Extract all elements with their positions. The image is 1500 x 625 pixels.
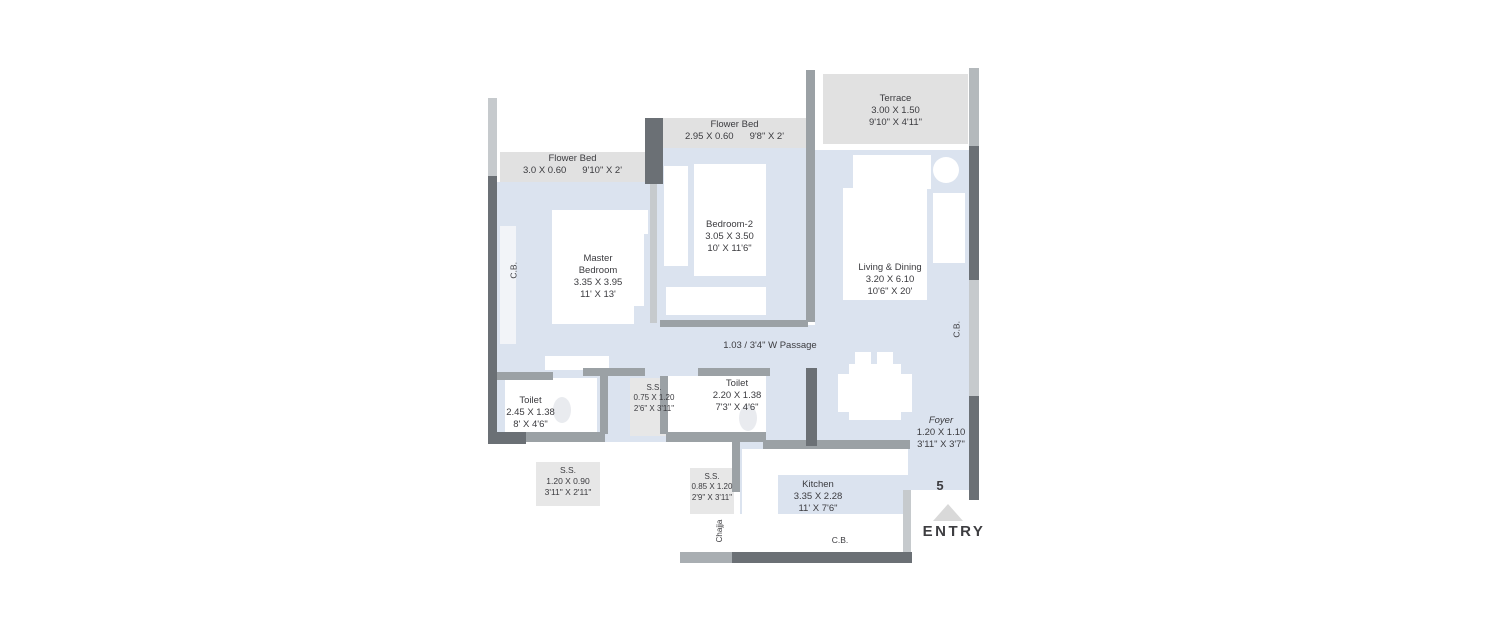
imperial-dims: 3'11" X 3'7" bbox=[908, 439, 974, 451]
imperial-dims: 2'6" X 3'11" bbox=[633, 404, 675, 414]
label-living-dining: Living & Dining 3.20 X 6.10 10'6" X 20' bbox=[840, 262, 940, 298]
imperial-dims: 10'6" X 20' bbox=[840, 286, 940, 298]
master-dresser bbox=[545, 356, 609, 370]
label-toilet-left: Toilet 2.45 X 1.38 8' X 4'6" bbox=[493, 395, 568, 431]
living-tv-unit bbox=[933, 193, 965, 263]
dining-chair-top-right bbox=[877, 352, 893, 364]
wall-kitchen-top bbox=[763, 440, 910, 449]
metric-dims: 0.75 X 1.20 bbox=[633, 393, 675, 403]
wall-toilet-mid-bottom bbox=[666, 432, 766, 442]
room-name: Terrace bbox=[823, 93, 968, 105]
label-passage: 1.03 / 3'4" W Passage bbox=[695, 340, 845, 352]
label-toilet-mid: Toilet 2.20 X 1.38 7'3" X 4'6" bbox=[698, 378, 776, 414]
label-ss-mid: S.S. 0.75 X 1.20 2'6" X 3'11" bbox=[633, 383, 675, 414]
imperial-dims: 8' X 4'6" bbox=[493, 419, 568, 431]
room-name: S.S. bbox=[691, 472, 733, 482]
imperial-dims: 2'9" X 3'11" bbox=[691, 493, 733, 503]
kitchen-counter bbox=[742, 449, 908, 475]
imperial-dims: 11' X 13' bbox=[566, 289, 630, 301]
wall-left-top-light bbox=[488, 98, 497, 176]
floor-plan: Flower Bed 3.0 X 0.60 9'10" X 2' Flower … bbox=[0, 0, 1500, 625]
wall-right-top-light bbox=[969, 68, 979, 146]
imperial-dims: 9'10" X 4'11" bbox=[823, 117, 968, 129]
label-flower-bed-left: Flower Bed 3.0 X 0.60 9'10" X 2' bbox=[500, 153, 645, 177]
metric-dims: 3.35 X 2.28 bbox=[773, 491, 863, 503]
room-name: Toilet bbox=[493, 395, 568, 407]
room-name: S.S. bbox=[536, 465, 600, 476]
metric-dims: 2.95 X 0.60 bbox=[685, 131, 734, 143]
wall-toilet-mid-top bbox=[698, 368, 770, 376]
wall-toilet-mid-right bbox=[806, 368, 817, 446]
label-ss-kitchen: S.S. 0.85 X 1.20 2'9" X 3'11" bbox=[691, 472, 733, 503]
label-foyer: Foyer 1.20 X 1.10 3'11" X 3'7" bbox=[908, 415, 974, 451]
label-cb-left: C.B. bbox=[509, 250, 520, 290]
imperial-dims: 3'11" X 2'11" bbox=[536, 487, 600, 498]
label-chajja: Chajja bbox=[715, 506, 725, 556]
wall-bedroom2-bottom bbox=[660, 320, 808, 327]
imperial-dims: 7'3" X 4'6" bbox=[698, 402, 776, 414]
wall-bedroom2-living-divider bbox=[806, 70, 815, 322]
metric-dims: 3.05 X 3.50 bbox=[682, 231, 777, 243]
living-plant bbox=[933, 157, 959, 183]
wall-top-block bbox=[645, 118, 663, 184]
metric-dims: 0.85 X 1.20 bbox=[691, 482, 733, 492]
label-bedroom2: Bedroom-2 3.05 X 3.50 10' X 11'6" bbox=[682, 219, 777, 255]
metric-dims: 1.20 X 0.90 bbox=[536, 476, 600, 487]
entry-arrow-icon bbox=[933, 504, 963, 521]
living-sofa bbox=[853, 155, 931, 189]
metric-dims: 1.20 X 1.10 bbox=[908, 427, 974, 439]
metric-dims: 3.0 X 0.60 bbox=[523, 165, 566, 177]
metric-dims: 2.45 X 1.38 bbox=[493, 407, 568, 419]
wall-bottom-left-stub bbox=[488, 432, 526, 444]
floor-plan-drawing bbox=[0, 0, 1500, 625]
label-kitchen: Kitchen 3.35 X 2.28 11' X 7'6" bbox=[773, 479, 863, 515]
room-name: Toilet bbox=[698, 378, 776, 390]
wall-entry-left-light bbox=[903, 490, 911, 554]
metric-dims: 3.20 X 6.10 bbox=[840, 274, 940, 286]
room-name: S.S. bbox=[633, 383, 675, 393]
metric-dims: 3.35 X 3.95 bbox=[566, 277, 630, 289]
imperial-dims: 10' X 11'6" bbox=[682, 243, 777, 255]
room-name: Living & Dining bbox=[840, 262, 940, 274]
label-master-bedroom: Master Bedroom 3.35 X 3.95 11' X 13' bbox=[566, 253, 630, 301]
wall-right-upper bbox=[969, 146, 979, 280]
room-name: Kitchen bbox=[773, 479, 863, 491]
wall-toilet-left-right bbox=[600, 376, 608, 434]
label-ss-left: S.S. 1.20 X 0.90 3'11" X 2'11" bbox=[536, 465, 600, 498]
imperial-dims: 9'8" X 2' bbox=[750, 131, 784, 143]
imperial-dims: 9'10" X 2' bbox=[582, 165, 622, 177]
wall-toilet-left-top-a bbox=[497, 372, 553, 380]
unit-number: 5 bbox=[930, 478, 950, 494]
metric-dims: 2.20 X 1.38 bbox=[698, 390, 776, 402]
imperial-dims: 11' X 7'6" bbox=[773, 503, 863, 515]
label-cb-right: C.B. bbox=[952, 309, 963, 349]
wall-ss-kitchen-right bbox=[732, 442, 740, 492]
wall-bottom-main bbox=[732, 552, 912, 563]
metric-dims: 3.00 X 1.50 bbox=[823, 105, 968, 117]
room-name: Master Bedroom bbox=[566, 253, 630, 277]
room-name: Flower Bed bbox=[500, 153, 645, 165]
bedroom2-wardrobe bbox=[666, 287, 766, 315]
label-flower-bed-mid: Flower Bed 2.95 X 0.60 9'8" X 2' bbox=[663, 119, 806, 143]
wall-master-bedroom2-divider bbox=[650, 183, 657, 323]
wall-toilet-left-top-b bbox=[583, 368, 645, 376]
dining-chair-right bbox=[899, 374, 912, 412]
dining-chair-top-left bbox=[855, 352, 871, 364]
passage-name: 1.03 / 3'4" W Passage bbox=[695, 340, 845, 352]
dining-chair-left bbox=[838, 374, 851, 412]
dining-table bbox=[849, 364, 901, 420]
label-terrace: Terrace 3.00 X 1.50 9'10" X 4'11" bbox=[823, 93, 968, 129]
wall-right-mid-light bbox=[969, 280, 979, 396]
label-cb-bottom: C.B. bbox=[820, 535, 860, 546]
entry-label: ENTRY bbox=[915, 523, 993, 542]
room-name: Bedroom-2 bbox=[682, 219, 777, 231]
room-name: Flower Bed bbox=[663, 119, 806, 131]
room-name: Foyer bbox=[908, 415, 974, 427]
